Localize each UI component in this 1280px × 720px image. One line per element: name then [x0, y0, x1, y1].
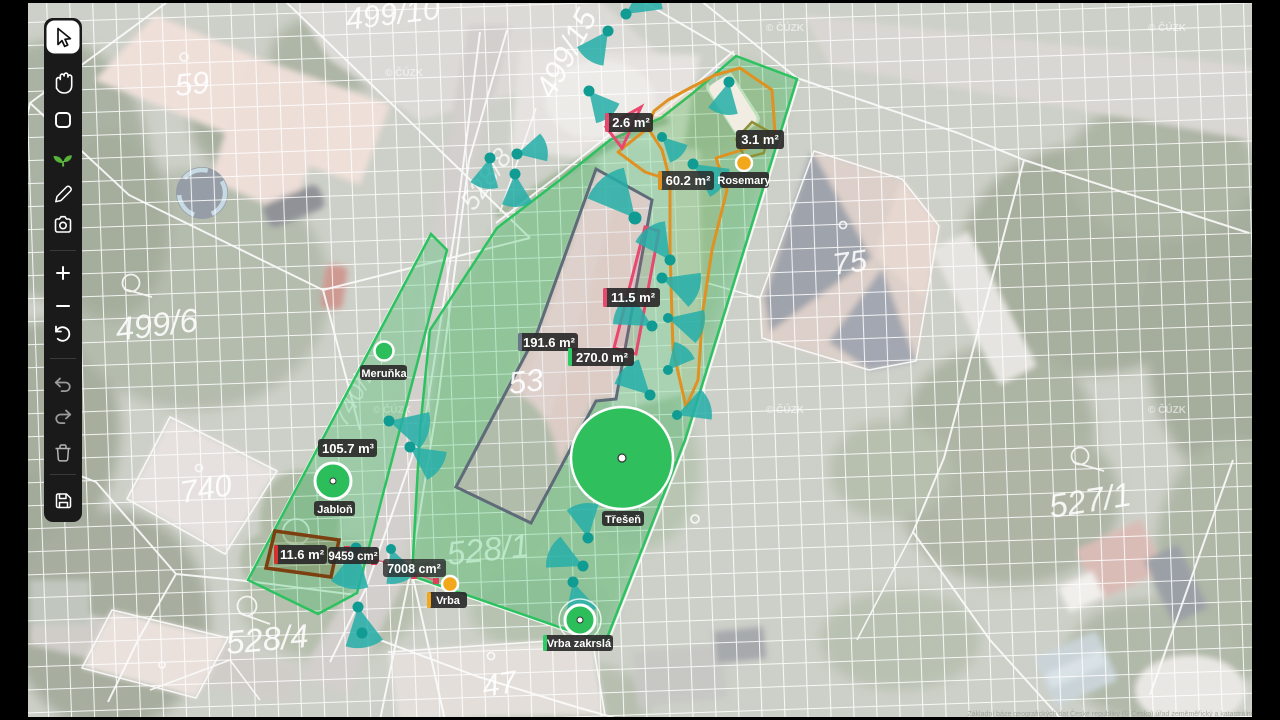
svg-text:191.6 m²: 191.6 m² [523, 335, 576, 350]
svg-text:59: 59 [173, 65, 211, 103]
svg-text:Základní báze geografických da: Základní báze geografických dat České re… [967, 709, 1252, 718]
svg-text:75: 75 [830, 242, 870, 282]
svg-text:3.1 m²: 3.1 m² [741, 132, 779, 147]
svg-text:2.6 m²: 2.6 m² [612, 115, 650, 130]
svg-text:© ČÚZK: © ČÚZK [1148, 21, 1187, 34]
svg-text:Vrba: Vrba [436, 595, 461, 607]
svg-text:Jabloň: Jabloň [317, 504, 353, 516]
svg-text:© ČÚZK: © ČÚZK [385, 66, 424, 79]
svg-text:105.7 m³: 105.7 m³ [322, 441, 375, 456]
svg-text:528/4: 528/4 [224, 617, 310, 661]
svg-text:53: 53 [507, 362, 545, 401]
svg-text:© ČÚZK: © ČÚZK [1148, 403, 1187, 416]
svg-text:9459 cm²: 9459 cm² [328, 551, 377, 563]
svg-text:© ČÚZK: © ČÚZK [766, 21, 805, 34]
svg-text:60.2 m²: 60.2 m² [666, 173, 711, 188]
svg-text:270.0 m²: 270.0 m² [576, 350, 629, 365]
svg-text:Rosemary: Rosemary [717, 175, 771, 187]
svg-text:Třešeň: Třešeň [605, 514, 641, 526]
svg-text:7008 cm²: 7008 cm² [387, 562, 441, 576]
svg-text:Vrba zakrslá: Vrba zakrslá [547, 638, 612, 650]
svg-text:Meruňka: Meruňka [361, 368, 407, 380]
svg-text:© ČÚZK: © ČÚZK [766, 403, 805, 416]
svg-text:11.5 m²: 11.5 m² [611, 290, 656, 305]
svg-text:11.6 m²: 11.6 m² [280, 547, 325, 562]
